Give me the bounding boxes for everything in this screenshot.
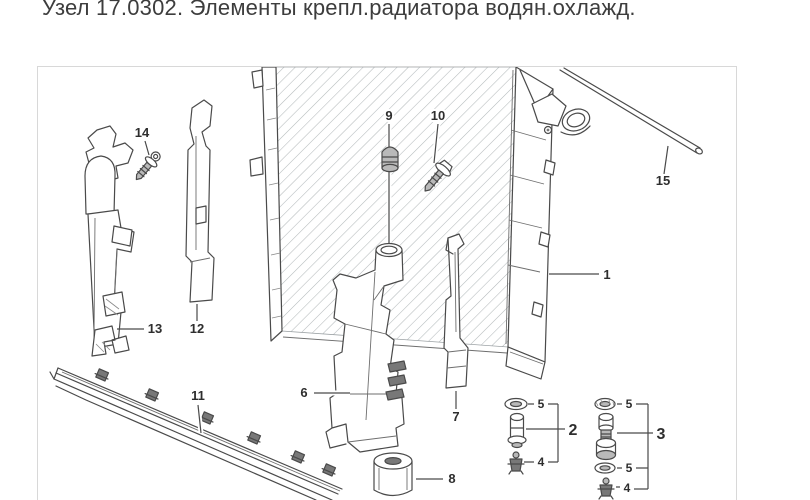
hardware-group-3-drawing <box>595 399 616 500</box>
radiator-drawing <box>250 67 593 379</box>
callout-grommet[interactable]: 9 <box>385 108 392 123</box>
callout-washer-right-top[interactable]: 5 <box>626 397 633 411</box>
callout-pin-left[interactable]: 2 <box>569 422 578 439</box>
diagram-frame: 1 15 9 <box>37 66 737 500</box>
callout-washer-left[interactable]: 5 <box>538 397 545 411</box>
callout-center-bracket[interactable]: 6 <box>300 385 307 400</box>
grommet-drawing <box>382 147 398 172</box>
left-bracket-drawing <box>85 126 134 356</box>
parts-diagram: 1 15 9 <box>38 67 736 500</box>
callout-washer-right-bottom[interactable]: 5 <box>626 461 633 475</box>
callout-clip-right[interactable]: 4 <box>624 481 631 495</box>
callout-side-screw[interactable]: 14 <box>135 125 150 140</box>
right-side-bracket-drawing <box>186 100 214 302</box>
callout-tube[interactable]: 15 <box>656 173 670 188</box>
parts-catalog-page: Узел 17.0302. Элементы крепл.радиатора в… <box>0 0 810 500</box>
hardware-group-2-drawing <box>505 399 527 475</box>
page-title: Узел 17.0302. Элементы крепл.радиатора в… <box>42 0 636 21</box>
callout-rubber-mount[interactable]: 8 <box>448 471 455 486</box>
callout-left-bracket[interactable]: 13 <box>148 321 162 336</box>
callout-radiator[interactable]: 1 <box>603 267 610 282</box>
side-screw-drawing <box>131 149 164 184</box>
callout-thin-bracket[interactable]: 7 <box>452 409 459 424</box>
callout-carrier-rail[interactable]: 11 <box>191 388 205 403</box>
callout-clip-left[interactable]: 4 <box>538 455 545 469</box>
callout-right-side-bracket[interactable]: 12 <box>190 321 204 336</box>
rubber-mount-drawing <box>374 453 412 496</box>
callout-radiator-screw[interactable]: 10 <box>431 108 445 123</box>
callout-pin-right[interactable]: 3 <box>657 426 666 443</box>
